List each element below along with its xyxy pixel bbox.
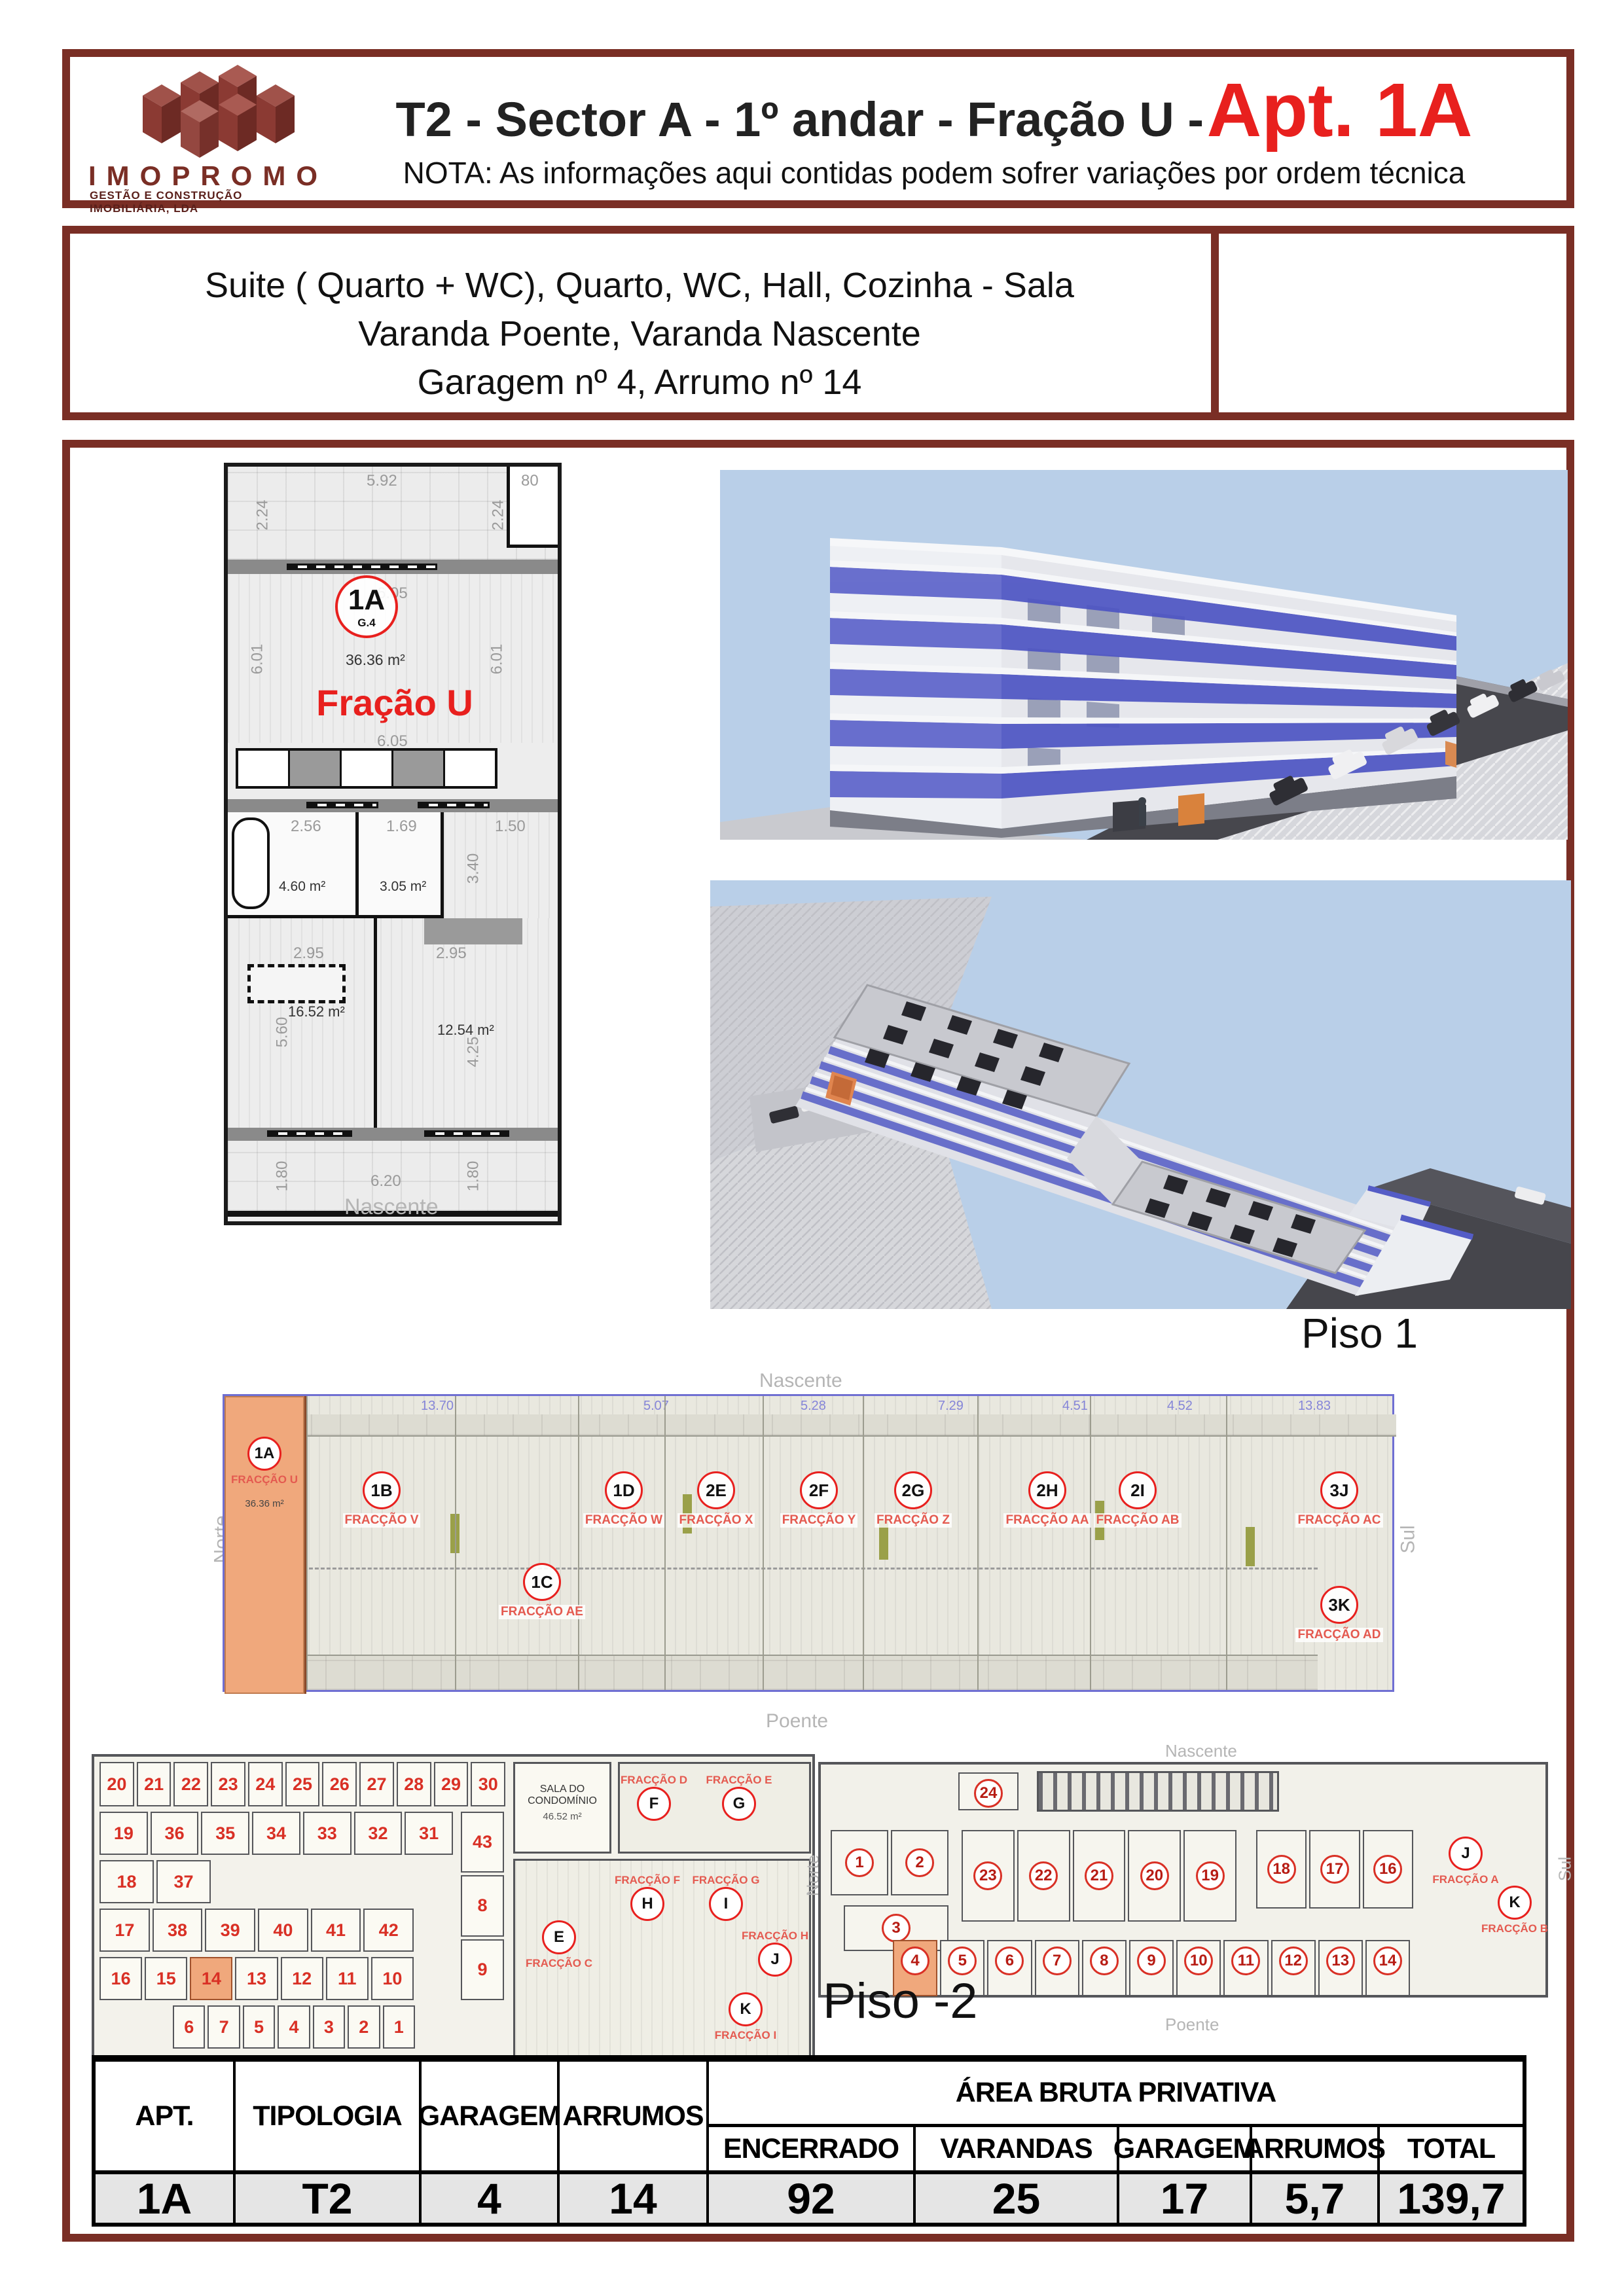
arrumos-row-2: 19363534333231	[99, 1812, 453, 1855]
fraction-label: FRACÇÃO E	[703, 1774, 775, 1787]
garage-number: 3	[882, 1914, 911, 1943]
garage-cell: 13	[1318, 1940, 1363, 1996]
garage-cell: 18	[1256, 1830, 1307, 1909]
piso1-1a-circle: 1A	[247, 1437, 281, 1471]
fraction-circle: J	[758, 1943, 792, 1977]
garage-cell: 16	[1363, 1830, 1413, 1909]
fraction-circle: H	[630, 1887, 664, 1921]
dim-terrace-w: 5.92	[367, 472, 397, 490]
piso1-1a-id: 1A	[255, 1444, 275, 1463]
value-arrumos-area: 5,7	[1252, 2170, 1380, 2223]
value-garagem: 4	[422, 2170, 560, 2223]
dim-terrace-right: 80	[521, 472, 539, 490]
unit-divider	[306, 1396, 308, 1690]
dim-balcony-h: 1.80	[273, 1161, 291, 1192]
value-apt: 1A	[96, 2170, 236, 2223]
piso1-1a-area: 36.36 m²	[225, 1498, 304, 1509]
dim-balcony-h2: 1.80	[464, 1161, 482, 1192]
arrumos-row-3: 1837	[99, 1860, 211, 1903]
garage-mid-row-b: 181716	[1256, 1830, 1413, 1909]
piso1-unit-2h: 2H FRACÇÃO AA	[1001, 1471, 1093, 1528]
garage-cell: 21	[1073, 1830, 1126, 1922]
fraction-circle: K	[729, 1992, 763, 2026]
garage-cell: 22	[1017, 1830, 1070, 1922]
arrumo-cell: 9	[461, 1939, 504, 2000]
arrumo-cell: 5	[243, 2005, 275, 2049]
fraction-circle: K	[1498, 1886, 1532, 1920]
arrumo-cell: 43	[461, 1812, 504, 1873]
window-bed2	[424, 1130, 509, 1137]
garage-number: 24	[974, 1779, 1003, 1808]
arrumo-cell: 25	[285, 1762, 320, 1806]
sub-header-total: TOTAL	[1380, 2127, 1523, 2170]
building-render-aerial	[710, 880, 1571, 1309]
fraction-unit-f: FRACÇÃO F H	[611, 1871, 683, 1921]
value-varandas: 25	[916, 2170, 1119, 2223]
fraction-unit-b: K FRACÇÃO B	[1479, 1886, 1551, 1935]
window-living-north	[287, 564, 437, 570]
arrumo-cell: 2	[348, 2005, 380, 2049]
fraction-circle: G	[722, 1787, 756, 1821]
garage-cell: 9	[1129, 1940, 1174, 1996]
sub-header-varandas: VARANDAS	[916, 2127, 1119, 2170]
arrumo-cell: 10	[371, 1957, 414, 2000]
olive-accent	[1246, 1527, 1255, 1566]
piso1-unit-1c: 1C FRACÇÃO AE	[496, 1563, 588, 1619]
sala-condominio: SALA DO CONDOMÍNIO 46.52 m²	[513, 1762, 611, 1854]
garage-cell-24: 24	[958, 1772, 1019, 1810]
arrumo-cell: 36	[151, 1812, 199, 1855]
arrumo-cell: 26	[322, 1762, 357, 1806]
piso1-unit-2e: 2E FRACÇÃO X	[670, 1471, 762, 1528]
arrumo-cell: 41	[311, 1909, 361, 1952]
unit-id: 2I	[1119, 1471, 1157, 1509]
piso1-unit-2g: 2G FRACÇÃO Z	[867, 1471, 959, 1528]
dim-balcony-w: 6.20	[370, 1172, 401, 1191]
p1-dim8: 13.83	[1298, 1399, 1331, 1414]
building-render-front	[720, 470, 1568, 840]
fraction-circle: F	[637, 1787, 671, 1821]
unit-id: 3J	[1320, 1471, 1358, 1509]
dim-bed1-h: 5.60	[273, 1017, 291, 1048]
p1-dim7: 4.52	[1167, 1399, 1193, 1414]
fraction-label: FRACÇÃO F	[611, 1874, 683, 1887]
logo-name: IMOPROMO	[88, 160, 328, 192]
arrumo-cell: 4	[278, 2005, 310, 2049]
garage-cell: 14	[1365, 1940, 1410, 1996]
arrumo-cell: 20	[99, 1762, 134, 1806]
description-divider	[1211, 234, 1219, 412]
dim-hall-w: 1.50	[495, 817, 526, 836]
arrumo-cell: 39	[205, 1909, 255, 1952]
unit-divider	[763, 1396, 764, 1690]
arrumos-row-5: 16151413121110	[99, 1957, 414, 2000]
description-line-2: Varanda Poente, Varanda Nascente	[70, 310, 1209, 358]
logo-subtitle: GESTÃO E CONSTRUÇÃO IMOBILIÁRIA, LDA	[90, 189, 324, 215]
arrumo-cell: 40	[258, 1909, 308, 1952]
arrumo-cell: 23	[211, 1762, 245, 1806]
garage-cell: 12	[1271, 1940, 1316, 1996]
fraction-circle: I	[709, 1887, 743, 1921]
fraction-unit-e: FRACÇÃO E G	[703, 1771, 775, 1821]
bathtub	[232, 817, 270, 909]
garage-cell: 8	[1082, 1940, 1127, 1996]
compass-sul-garage: Sul	[1555, 1857, 1575, 1882]
garage-cell: 7	[1035, 1940, 1079, 1996]
garage-cell: 17	[1309, 1830, 1360, 1909]
living-area-label: 36.36 m²	[346, 651, 405, 669]
sala-label: SALA DO CONDOMÍNIO	[515, 1784, 609, 1807]
piso1-unit-1b: 1B FRACÇÃO V	[336, 1471, 427, 1528]
arrumo-cell: 42	[363, 1909, 414, 1952]
group-header-area-bruta: ÁREA BRUTA PRIVATIVA	[709, 2062, 1523, 2127]
sala-area: 46.52 m²	[515, 1811, 609, 1822]
unit-divider	[578, 1396, 579, 1690]
dim-bath1-w: 2.56	[291, 817, 321, 836]
sub-header-garagem: GARAGEM	[1119, 2127, 1252, 2170]
col-header-garagem: GARAGEM	[422, 2062, 560, 2170]
bedroom-suite	[228, 918, 377, 1128]
fraction-label: FRACÇÃO B	[1479, 1922, 1551, 1935]
unit-fraction: FRACÇÃO AC	[1295, 1513, 1382, 1528]
compass-sul-piso1: Sul	[1398, 1525, 1420, 1553]
window-bath1	[306, 802, 378, 808]
arrumo-cell: 31	[405, 1812, 453, 1855]
unit-circle-sub: G.4	[357, 617, 375, 630]
wardrobe-wall-2	[424, 918, 522, 944]
header-box: IMOPROMO GESTÃO E CONSTRUÇÃO IMOBILIÁRIA…	[62, 49, 1574, 208]
arrumo-cell: 7	[208, 2005, 240, 2049]
dim-living-h2: 6.01	[488, 644, 506, 675]
header-title-area: T2 - Sector A - 1º andar - Fração U - Ap…	[312, 57, 1556, 200]
fraction-unit-h: FRACÇÃO H J	[739, 1927, 811, 1977]
piso1-balcony-bottom	[297, 1655, 1318, 1690]
col-header-tipologia: TIPOLOGIA	[236, 2062, 422, 2170]
arrumos-side-col: 4389	[461, 1812, 504, 2000]
piso1-unit-1a-highlight: 1A FRACÇÃO U 36.36 m²	[225, 1396, 306, 1694]
unit-id: 2E	[697, 1471, 735, 1509]
apartment-floor-plan: 5.92 80 2.24 2.24 6.05 1A G.4 36.36 m² 6…	[224, 463, 562, 1225]
garage-left-cells: 12	[831, 1830, 948, 1895]
unit-divider	[1226, 1396, 1227, 1690]
garage-outline: 24 2322212019 181716 12 3	[818, 1762, 1548, 1998]
bath1-area: 4.60 m²	[279, 879, 325, 895]
arrumo-cell: 1	[383, 2005, 415, 2049]
arrumo-cell: 22	[173, 1762, 208, 1806]
arrumo-cell: 13	[235, 1957, 278, 2000]
arrumos-row-6: 6754321	[173, 2005, 415, 2049]
arrumo-cell: 14	[190, 1957, 232, 2000]
header-note: NOTA: As informações aqui contidas podem…	[312, 155, 1556, 190]
piso1-balcony-top	[225, 1414, 1396, 1437]
unit-id: 3K	[1320, 1586, 1358, 1624]
unit-divider	[455, 1396, 456, 1690]
value-arrumos: 14	[560, 2170, 709, 2223]
p1-dim6: 4.51	[1062, 1399, 1088, 1414]
unit-circle-id: 1A	[348, 584, 385, 617]
value-tipologia: T2	[236, 2170, 422, 2223]
piso1-unit-2i: 2I FRACÇÃO AB	[1092, 1471, 1183, 1528]
unit-divider	[664, 1396, 666, 1690]
arrumo-cell: 17	[99, 1909, 150, 1952]
page-title: T2 - Sector A - 1º andar - Fração U -	[395, 92, 1204, 147]
garage-cell: 23	[962, 1830, 1015, 1922]
fraction-unit-a: J FRACÇÃO A	[1430, 1837, 1502, 1886]
piso-minus2-label: Piso -2	[823, 1973, 1019, 2030]
arrumo-cell: 28	[397, 1762, 431, 1806]
compass-poente-garage: Poente	[1165, 2015, 1219, 2035]
wall-kitchen	[228, 799, 558, 812]
unit-id: 2F	[800, 1471, 838, 1509]
col-header-apt: APT.	[96, 2062, 236, 2170]
arrumo-cell: 8	[461, 1875, 504, 1936]
arrumos-row-1: 2021222324252627282930	[99, 1762, 505, 1806]
piso1-unit-3k: 3K FRACÇÃO AD	[1293, 1586, 1385, 1642]
unit-id: 2H	[1028, 1471, 1066, 1509]
piso1-1a-fraction: FRACÇÃO U	[225, 1473, 304, 1486]
fraction-label: FRACÇÃO G	[690, 1874, 762, 1887]
arrumo-cell: 32	[354, 1812, 403, 1855]
fraction-unit-c: E FRACÇÃO C	[523, 1920, 595, 1970]
arrumo-cell: 33	[303, 1812, 352, 1855]
piso1-unit-2f: 2F FRACÇÃO Y	[773, 1471, 865, 1528]
window-bed1	[267, 1130, 352, 1137]
unit-fraction: FRACÇÃO AB	[1094, 1513, 1181, 1528]
dim-terrace-side2: 2.24	[489, 500, 507, 531]
arrumo-cell: 35	[201, 1812, 249, 1855]
summary-table: APT. TIPOLOGIA GARAGEM ARRUMOS ÁREA BRUT…	[92, 2055, 1526, 2227]
description-box: Suite ( Quarto + WC), Quarto, WC, Hall, …	[62, 226, 1574, 420]
arrumo-cell: 34	[252, 1812, 300, 1855]
garage-cell: 20	[1128, 1830, 1181, 1922]
arrumos-plan: 2021222324252627282930 19363534333231 18…	[92, 1754, 815, 2065]
piso1-title: Piso 1	[1274, 1309, 1445, 1357]
arrumo-cell: 15	[145, 1957, 187, 2000]
page-title-apartment: Apt. 1A	[1207, 67, 1473, 152]
fraction-label: FRACÇÃO C	[523, 1957, 595, 1970]
unit-id: 2G	[894, 1471, 932, 1509]
fraction-circle: J	[1449, 1837, 1483, 1871]
fraction-label: FRACÇÃO H	[739, 1929, 811, 1943]
p1-dim5: 7.29	[938, 1399, 964, 1414]
arrumo-cell: 6	[173, 2005, 205, 2049]
arrumo-cell: 11	[326, 1957, 369, 2000]
unit-divider	[1090, 1396, 1091, 1690]
compass-nascente-apartment: Nascente	[344, 1194, 439, 1220]
piso1-strip: 5.92 13.70 5.07 5.28 7.29 4.51 4.52 13.8…	[223, 1394, 1394, 1692]
garage-cell: 2	[891, 1830, 948, 1895]
unit-fraction: FRACÇÃO Z	[875, 1513, 952, 1528]
unit-fraction: FRACÇÃO X	[677, 1513, 755, 1528]
arrumo-cell: 27	[359, 1762, 394, 1806]
garage-cell: 10	[1176, 1940, 1221, 1996]
unit-id: 1B	[363, 1471, 401, 1509]
unit-circle-1a: 1A G.4	[335, 575, 398, 638]
arrumo-cell: 16	[99, 1957, 142, 2000]
arrumo-cell: 24	[248, 1762, 283, 1806]
fraction-label: FRACÇÃO D	[618, 1774, 690, 1787]
fraction-label: FRACÇÃO I	[710, 2029, 782, 2042]
value-garagem-area: 17	[1119, 2170, 1252, 2223]
fraction-title: Fração U	[274, 681, 516, 724]
arrumo-cell: 38	[153, 1909, 203, 1952]
unit-fraction: FRACÇÃO V	[343, 1513, 421, 1528]
garage-cell: 19	[1183, 1830, 1236, 1922]
fraction-circle: E	[542, 1920, 576, 1954]
value-total: 139,7	[1380, 2170, 1523, 2223]
unit-fraction: FRACÇÃO AD	[1295, 1628, 1382, 1642]
fraction-unit-g: FRACÇÃO G I	[690, 1871, 762, 1921]
window-bath2	[418, 802, 490, 808]
piso1-unit-1d: 1D FRACÇÃO W	[578, 1471, 670, 1528]
compass-nascente-piso1: Nascente	[759, 1370, 842, 1392]
datasheet-page: IMOPROMO GESTÃO E CONSTRUÇÃO IMOBILIÁRIA…	[0, 0, 1624, 2296]
unit-divider	[863, 1396, 864, 1690]
garage-mid-row-a: 2322212019	[962, 1830, 1236, 1922]
value-encerrado: 92	[709, 2170, 916, 2223]
piso1-plan: Nascente Norte Sul Poente 5.92 13.70 5.0…	[216, 1365, 1401, 1734]
arrumo-cell: 12	[281, 1957, 323, 2000]
bed1-area: 16.52 m²	[288, 1003, 345, 1020]
unit-fraction: FRACÇÃO W	[583, 1513, 664, 1528]
dim-hall-h: 3.40	[464, 853, 482, 884]
col-header-arrumos: ARRUMOS	[560, 2062, 709, 2170]
company-logo: IMOPROMO GESTÃO E CONSTRUÇÃO IMOBILIÁRIA…	[88, 61, 324, 202]
apartment-description: Suite ( Quarto + WC), Quarto, WC, Hall, …	[70, 261, 1209, 406]
dim-bed2-h: 4.25	[464, 1037, 482, 1067]
arrumo-cell: 19	[99, 1812, 148, 1855]
unit-fraction: FRACÇÃO Y	[780, 1513, 858, 1528]
arrumos-row-4: 173839404142	[99, 1909, 414, 1952]
dim-terrace-side: 2.24	[253, 500, 272, 531]
dim-living-h: 6.01	[248, 644, 266, 675]
compass-poente-piso1: Poente	[766, 1710, 828, 1732]
piso1-unit-3j: 3J FRACÇÃO AC	[1293, 1471, 1385, 1528]
fraction-unit-i: K FRACÇÃO I	[710, 1992, 782, 2042]
sub-header-arrumos: ARRUMOS	[1252, 2127, 1380, 2170]
p1-dim2: 13.70	[421, 1399, 454, 1414]
arrumo-cell: 29	[434, 1762, 469, 1806]
unit-id: 1C	[523, 1563, 561, 1601]
bath2-area: 3.05 m²	[380, 879, 426, 895]
dim-bath2-w: 1.69	[386, 817, 417, 836]
sub-header-encerrado: ENCERRADO	[709, 2127, 916, 2170]
fraction-unit-d: FRACÇÃO D F	[618, 1771, 690, 1821]
fraction-label: FRACÇÃO A	[1430, 1873, 1502, 1886]
wardrobe-dashed	[247, 964, 346, 1003]
arrumo-cell: 30	[471, 1762, 505, 1806]
arrumo-cell: 21	[137, 1762, 171, 1806]
compass-nascente-garage: Nascente	[1165, 1741, 1237, 1761]
p1-dim4: 5.28	[801, 1399, 826, 1414]
unit-id: 1D	[605, 1471, 643, 1509]
unit-fraction: FRACÇÃO AA	[1003, 1513, 1091, 1528]
garage-cell: 11	[1223, 1940, 1268, 1996]
unit-fraction: FRACÇÃO AE	[499, 1605, 585, 1619]
logo-cubes-icon	[95, 62, 317, 160]
main-content-box: 5.92 80 2.24 2.24 6.05 1A G.4 36.36 m² 6…	[62, 440, 1574, 2242]
garage-cell: 1	[831, 1830, 888, 1895]
arrumo-cell: 18	[99, 1860, 154, 1903]
arrumo-cell: 37	[156, 1860, 211, 1903]
kitchen-counter	[236, 748, 497, 789]
description-line-1: Suite ( Quarto + WC), Quarto, WC, Hall, …	[70, 261, 1209, 310]
unit-divider	[977, 1396, 979, 1690]
arrumo-cell: 3	[313, 2005, 345, 2049]
description-line-3: Garagem nº 4, Arrumo nº 14	[70, 358, 1209, 406]
garage-ramp	[1037, 1771, 1279, 1812]
